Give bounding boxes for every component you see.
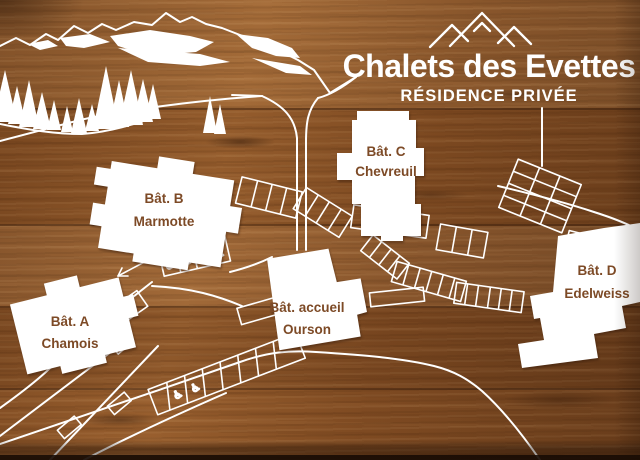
building-d: Bât. D Edelweiss (518, 223, 640, 368)
wooden-sign-board: ♿ ♿ ♿ ♿ ♿ ♿ (0, 0, 640, 460)
building-a-name: Chamois (41, 336, 98, 351)
building-c-label: Bât. C (366, 144, 405, 159)
building-accueil-label: Bât. accueil (269, 300, 344, 315)
sign-title: Chalets des Evettes (338, 50, 640, 84)
building-accueil: Bât. accueil Ourson (267, 246, 370, 350)
snow-patches (28, 30, 312, 75)
board-bottom-edge (0, 440, 640, 460)
wheelchair-icon: ♿ (171, 387, 185, 403)
building-d-name: Edelweiss (564, 286, 629, 301)
building-c: Bât. C Chevreuil (337, 111, 424, 241)
pine-trees-icon (0, 66, 226, 134)
wheelchair-icon: ♿ (189, 380, 203, 396)
sign-subtitle: RÉSIDENCE PRIVÉE (338, 87, 640, 106)
parking-curved-row (361, 235, 410, 279)
building-a-label: Bât. A (51, 314, 90, 329)
building-accueil-name: Ourson (283, 322, 331, 337)
building-b-name: Marmotte (134, 214, 195, 229)
mountain-logo-icon (430, 13, 531, 47)
parking-fan (236, 177, 303, 218)
building-c-name: Chevreuil (355, 164, 417, 179)
building-b-label: Bât. B (144, 191, 183, 206)
building-d-label: Bât. D (577, 263, 616, 278)
buildings: Bât. C Chevreuil Bât. B Marmotte Bât. A … (7, 111, 640, 382)
parking-grid-north (499, 159, 582, 233)
parking-small-block (436, 224, 488, 258)
building-a: Bât. A Chamois (7, 263, 148, 382)
